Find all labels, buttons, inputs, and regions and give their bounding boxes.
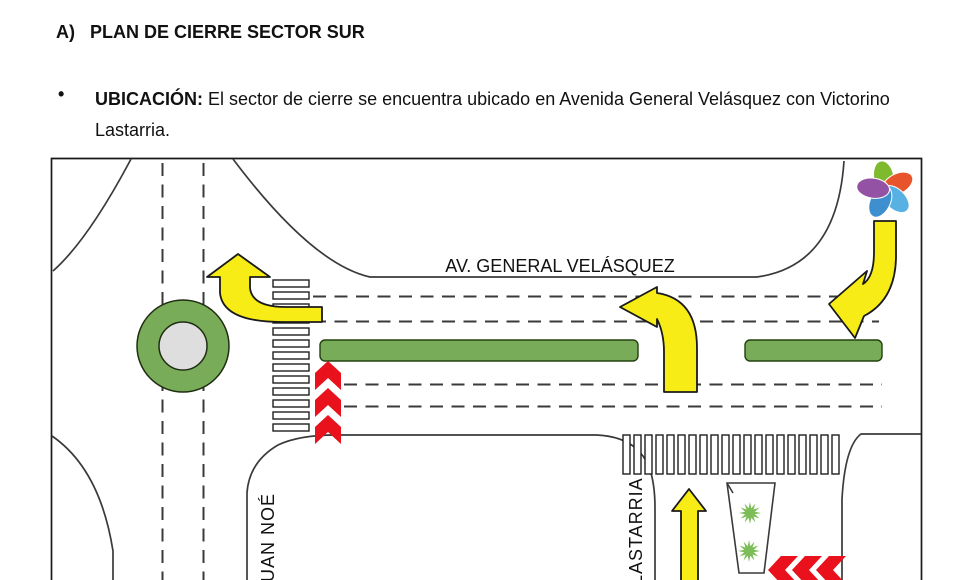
chevron-up-icon: [315, 415, 341, 444]
crosswalk-stripe: [821, 435, 828, 474]
pinwheel-logo-icon: [855, 159, 916, 221]
crosswalk-stripe: [273, 388, 309, 395]
crosswalk-stripe: [733, 435, 740, 474]
crosswalk-south: [623, 435, 839, 474]
chevron-left-icon: [768, 556, 798, 580]
crosswalk-stripe: [273, 352, 309, 359]
street-label-lastarria: LASTARRIA: [626, 477, 646, 580]
crosswalk-stripe: [273, 424, 309, 431]
crosswalk-stripe: [744, 435, 751, 474]
crosswalk-stripe: [832, 435, 839, 474]
crosswalk-stripe: [656, 435, 663, 474]
crosswalk-stripe: [766, 435, 773, 474]
block-bottom-center: [247, 435, 655, 580]
traffic-island: [727, 483, 775, 573]
chevron-left-icon: [792, 556, 822, 580]
closure-chevrons-left: [768, 556, 846, 580]
roundabout: [137, 300, 229, 392]
block-bottom-right: [842, 434, 921, 580]
crosswalk-stripe: [273, 400, 309, 407]
crosswalk-stripe: [634, 435, 641, 474]
straight-arrow-north: [672, 489, 706, 580]
crosswalk-stripe: [645, 435, 652, 474]
median-bar-west: [320, 340, 638, 361]
chevron-up-icon: [315, 361, 341, 390]
crosswalk-stripe: [273, 376, 309, 383]
hook-arrow-north-to-west: [829, 221, 896, 338]
traffic-closure-diagram: AV. GENERAL VELÁSQUEZ JUAN NOÉ LASTARRIA: [0, 0, 958, 580]
crosswalk-stripe: [667, 435, 674, 474]
median-bar-east: [745, 340, 882, 361]
chevron-up-icon: [315, 388, 341, 417]
block-bottom-left-corner: [52, 436, 113, 580]
crosswalk-stripe: [711, 435, 718, 474]
crosswalk-stripe: [755, 435, 762, 474]
crosswalk-stripe: [273, 280, 309, 287]
crosswalk-stripe: [810, 435, 817, 474]
crosswalk-stripe: [700, 435, 707, 474]
island-outline: [727, 483, 775, 573]
crosswalk-west: [273, 280, 309, 431]
crosswalk-stripe: [777, 435, 784, 474]
crosswalk-stripe: [273, 412, 309, 419]
roundabout-center-island: [159, 322, 207, 370]
crosswalk-stripe: [788, 435, 795, 474]
street-label-juan-noe: JUAN NOÉ: [258, 493, 278, 580]
block-top-left-corner: [53, 159, 131, 271]
crosswalk-stripe: [623, 435, 630, 474]
turn-arrow-west-to-north: [207, 254, 322, 322]
crosswalk-stripe: [678, 435, 685, 474]
crosswalk-stripe: [273, 328, 309, 335]
crosswalk-stripe: [273, 364, 309, 371]
avenue-label: AV. GENERAL VELÁSQUEZ: [445, 256, 674, 276]
crosswalk-stripe: [273, 340, 309, 347]
closure-chevrons-up: [315, 361, 341, 444]
crosswalk-stripe: [273, 292, 309, 299]
crosswalk-stripe: [722, 435, 729, 474]
median-bars: [320, 340, 882, 361]
crosswalk-stripe: [799, 435, 806, 474]
crosswalk-stripe: [689, 435, 696, 474]
